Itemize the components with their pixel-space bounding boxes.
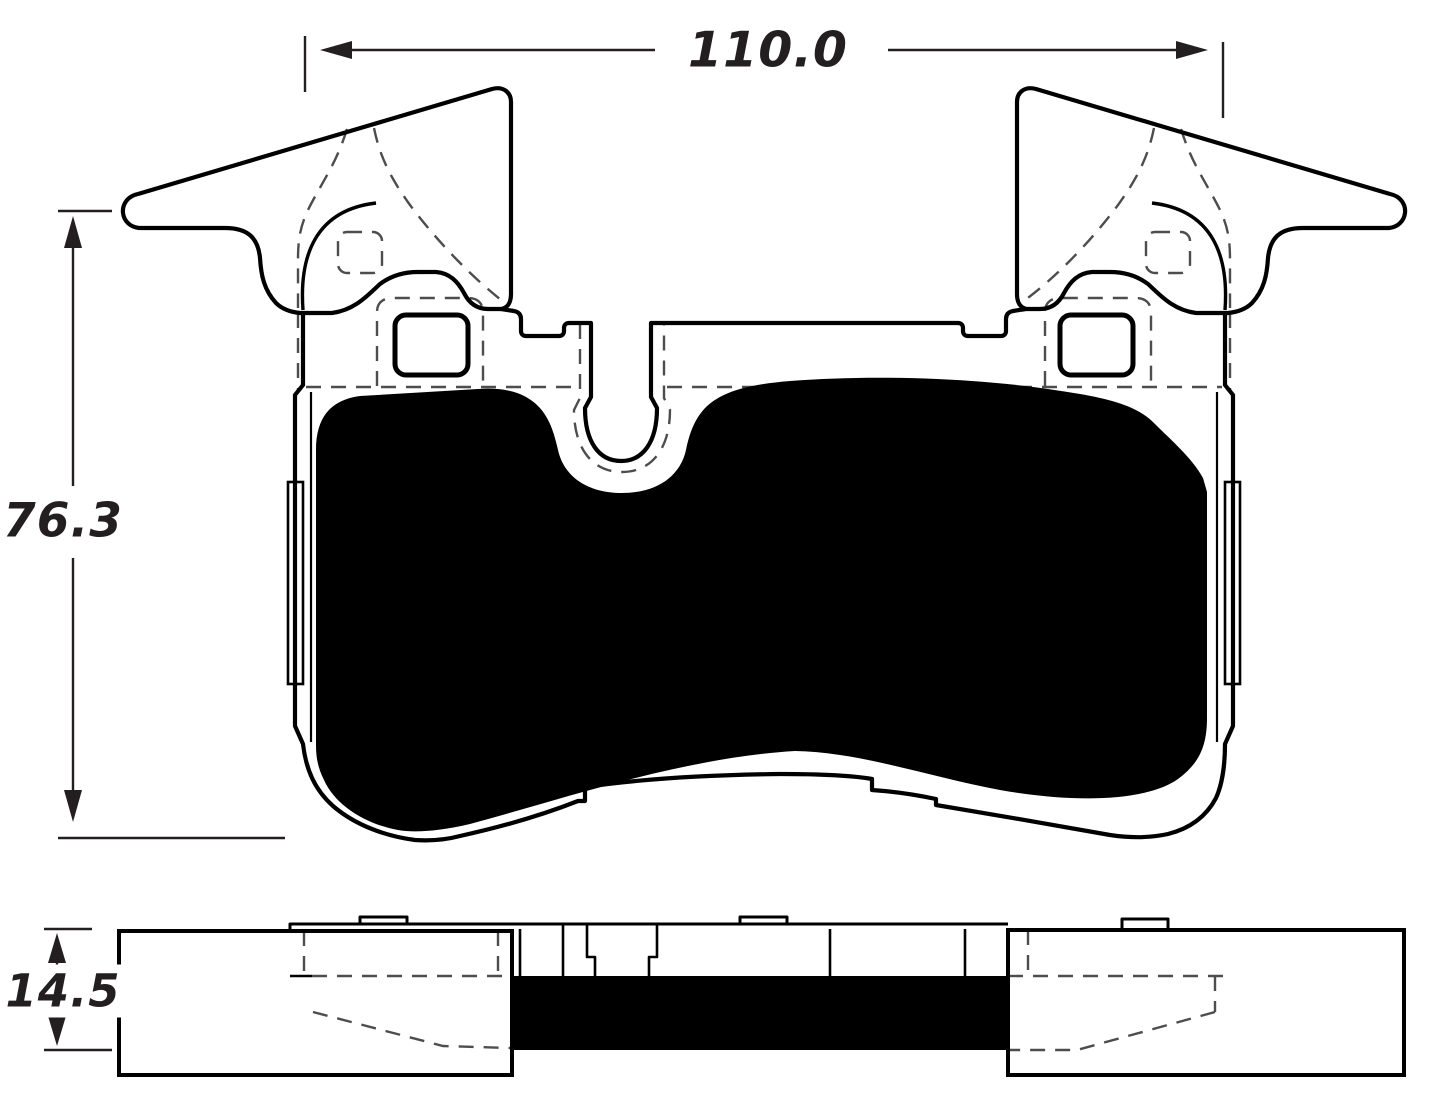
arrow-down: [48, 1016, 66, 1046]
side-right-block: [1008, 930, 1404, 1075]
arrow-up: [64, 216, 82, 248]
arrow-left: [320, 41, 352, 59]
ear-right: [1017, 88, 1405, 313]
ear-left: [123, 88, 511, 313]
friction-material-front: [316, 378, 1207, 832]
friction-material-side: [512, 976, 1008, 1050]
side-left-block: [119, 931, 512, 1075]
hidden-clip-right-a: [1181, 129, 1230, 308]
hidden-square-right: [1146, 232, 1190, 273]
arrow-down: [64, 790, 82, 822]
hidden-square-left: [338, 232, 382, 273]
hole-left: [395, 315, 468, 375]
drawing-canvas: 110.0 76.3 14.5: [0, 0, 1440, 1105]
side-hidden-right-slant: [1008, 1012, 1215, 1050]
side-view: [119, 917, 1404, 1075]
thickness-dimension-label: 14.5: [0, 965, 127, 1018]
hole-right: [1060, 315, 1133, 375]
boss-arc-right: [1152, 203, 1226, 310]
side-hidden-left-slant: [313, 1012, 510, 1048]
arrow-up: [48, 933, 66, 963]
side-slot-left: [587, 924, 595, 976]
brake-pad-drawing: [0, 0, 1440, 1105]
boss-arc-left: [302, 203, 376, 310]
arrow-right: [1176, 41, 1208, 59]
height-dimension-label: 76.3: [0, 494, 129, 549]
front-view: [123, 88, 1405, 840]
hidden-clip-left-a: [298, 129, 347, 308]
side-slot-right: [649, 924, 657, 976]
width-dimension-label: 110.0: [682, 22, 854, 79]
boss-arcs: [302, 203, 1225, 310]
